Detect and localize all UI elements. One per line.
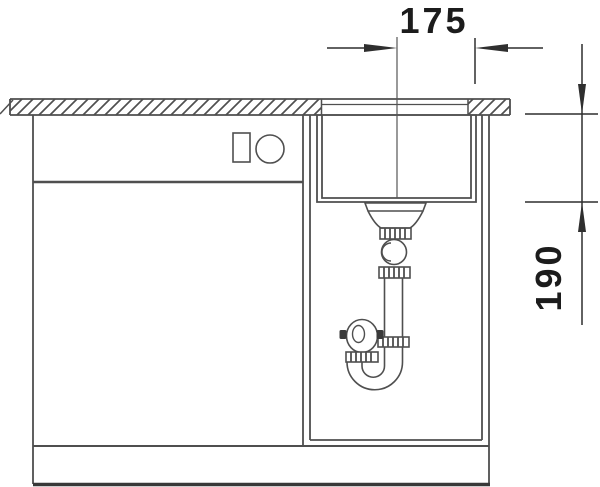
- loop-nut-ear-right: [377, 330, 384, 339]
- dimension-depth-190: 190: [525, 44, 598, 325]
- dim-arrow-up-icon: [578, 202, 586, 232]
- sink-cutout: [322, 97, 469, 117]
- trap-return-loop: [347, 320, 378, 353]
- dimension-depth-label: 190: [528, 242, 569, 311]
- compartment-left-wall: [303, 115, 310, 446]
- drain-pipe: [385, 278, 403, 337]
- elbow-ball-joint: [382, 240, 407, 265]
- technical-drawing-canvas: 175 190: [0, 0, 600, 487]
- loop-collar: [346, 352, 378, 362]
- locknut-upper: [380, 228, 411, 239]
- strainer-cap: [365, 203, 426, 211]
- locknut-middle: [379, 267, 410, 278]
- sink-installation-diagram: 175 190: [0, 0, 600, 487]
- front-circle-symbol: [256, 135, 284, 163]
- strainer-funnel: [368, 211, 423, 228]
- front-rect-symbol: [233, 133, 250, 162]
- pipe-below-nut: [385, 347, 403, 366]
- dim-arrow-down-icon: [578, 84, 586, 114]
- countertop-section: [0, 97, 510, 117]
- cabinet: [33, 115, 490, 485]
- dim-arrow-left-icon: [475, 44, 508, 52]
- dim-arrow-right-icon: [364, 44, 397, 52]
- drain-assembly: [340, 203, 427, 390]
- loop-nut-ear-left: [340, 330, 347, 339]
- dimension-width-label: 175: [399, 0, 468, 41]
- compartment-right-wall: [482, 115, 489, 484]
